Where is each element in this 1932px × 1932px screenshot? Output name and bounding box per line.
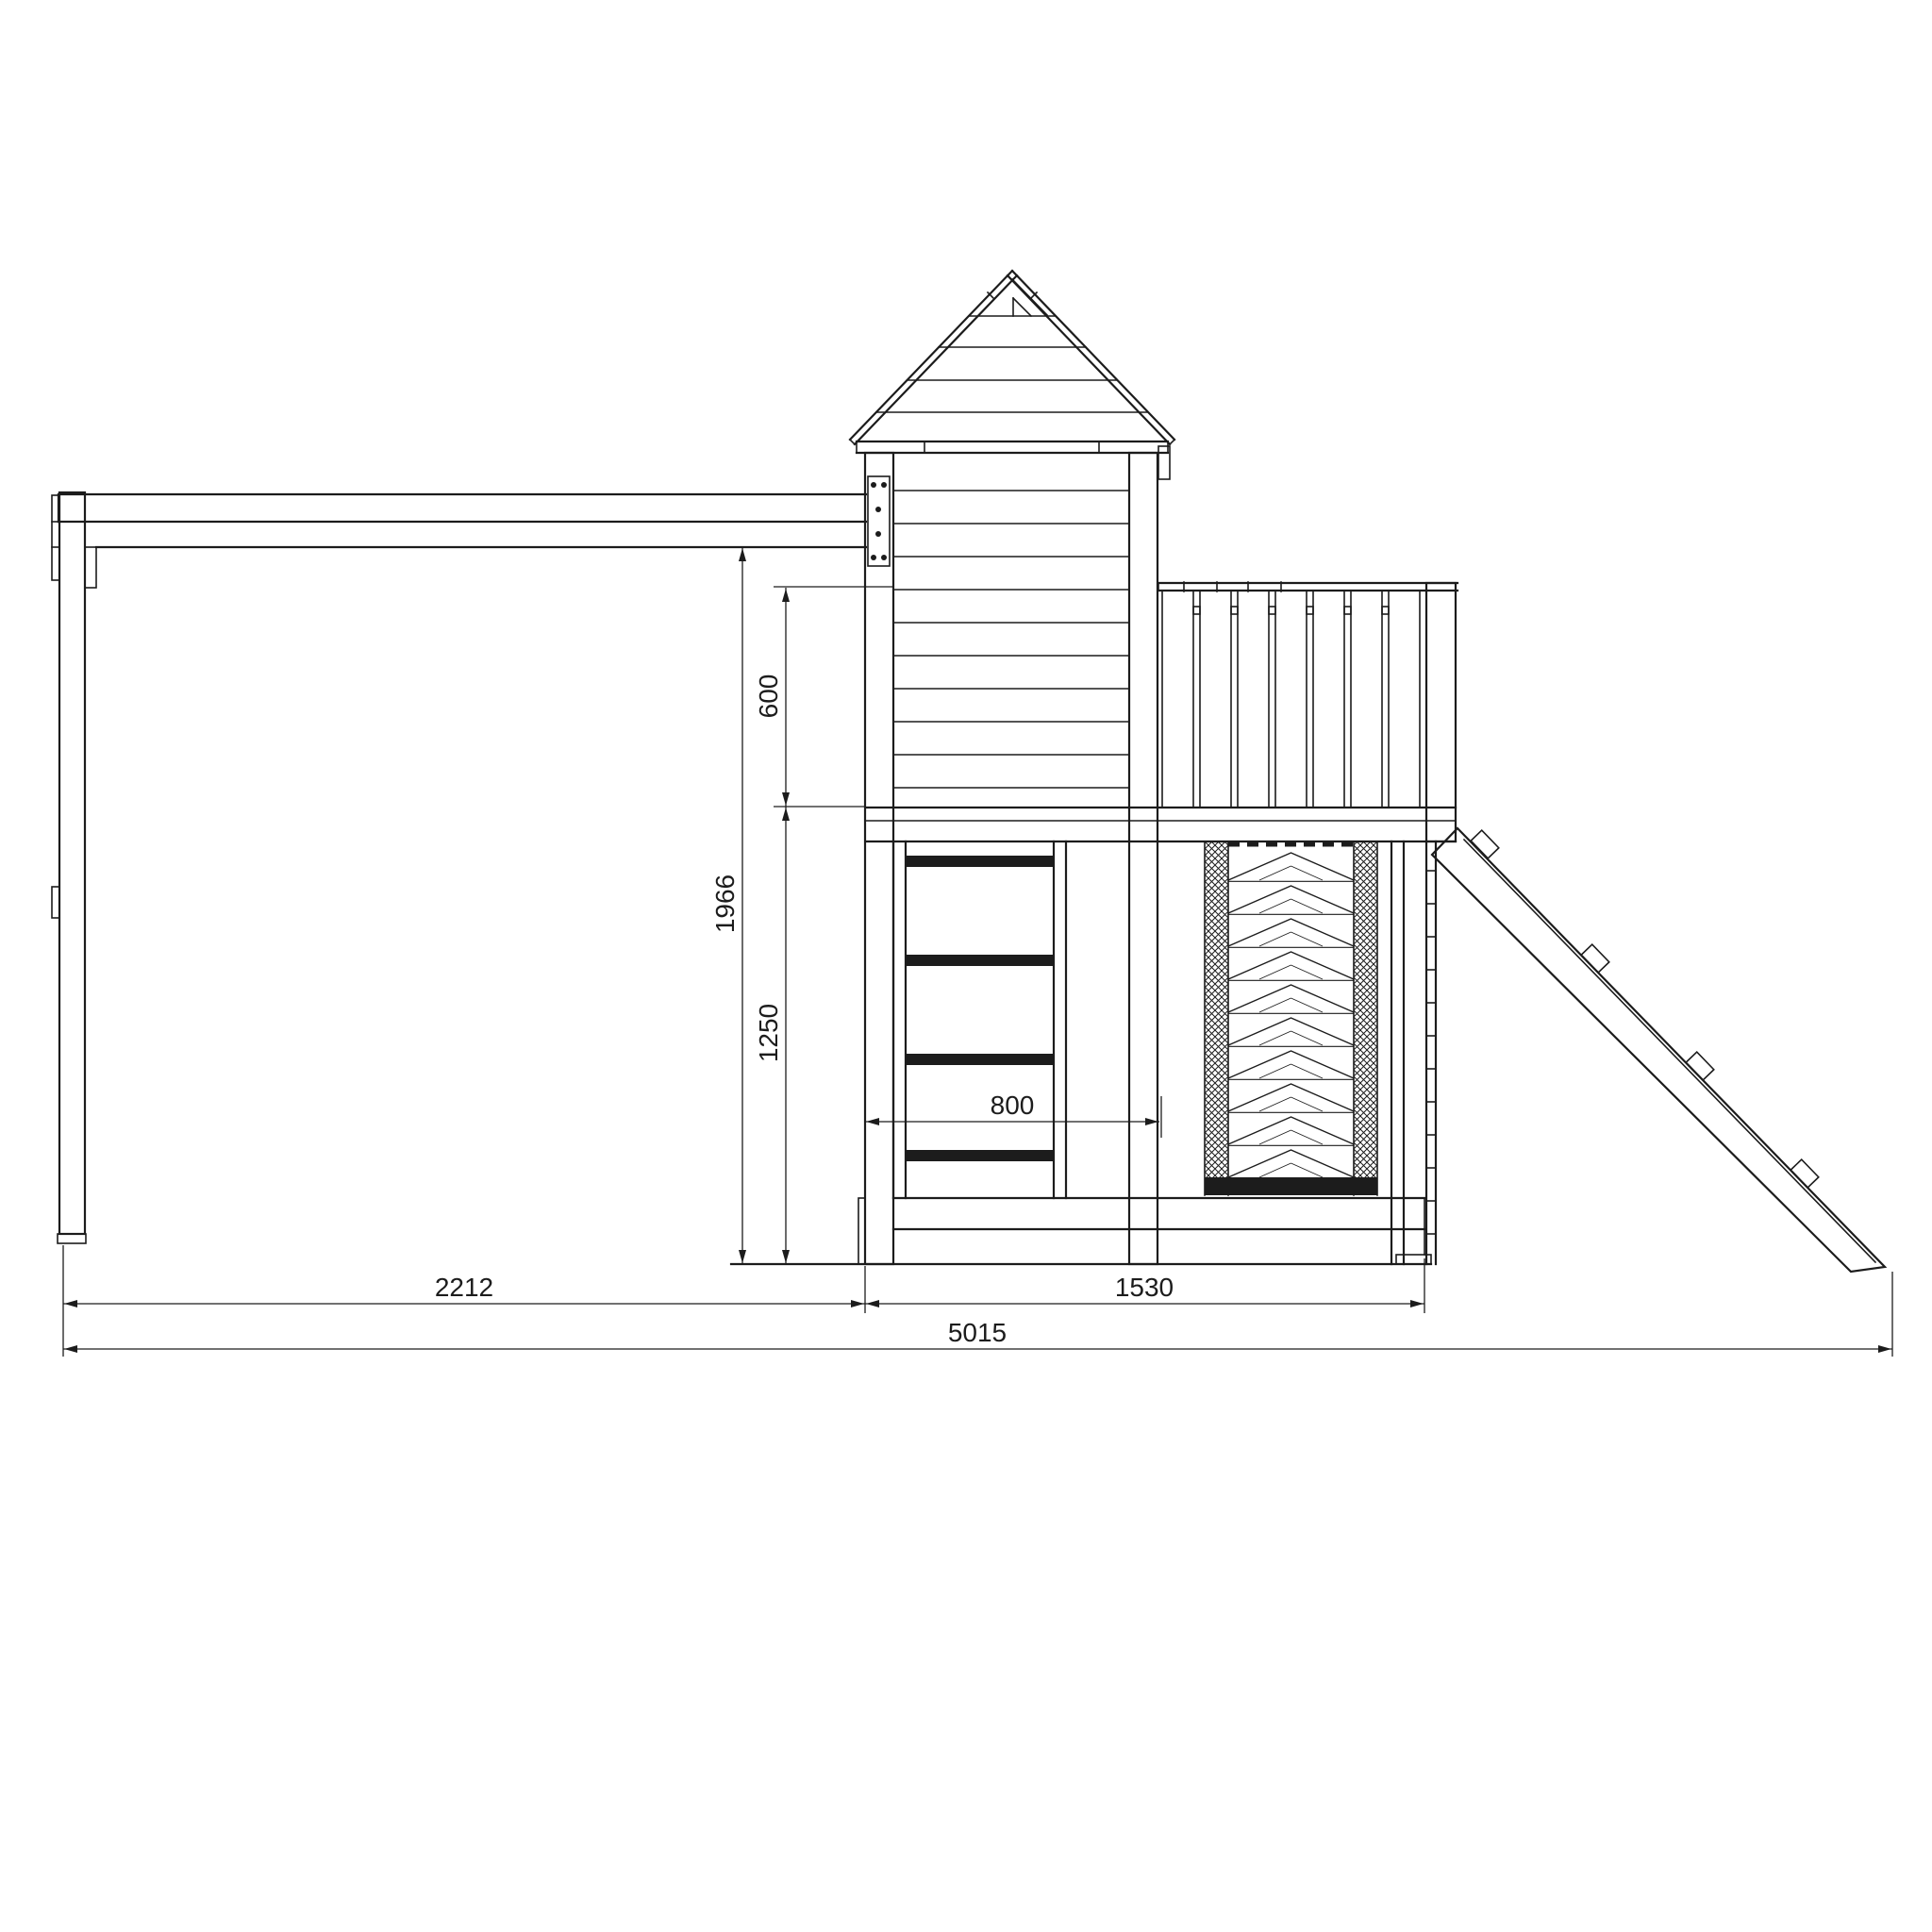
playset-elevation-drawing: 1966 600 1250 800 2212 1530 5015	[0, 0, 1932, 1932]
ramp-climbing-blocks	[1471, 830, 1819, 1188]
gable-apex-detail	[1012, 279, 1047, 316]
swing-post-foot	[58, 1234, 86, 1243]
tower-wall-siding	[893, 491, 1129, 788]
platform-deck	[866, 808, 1456, 841]
dimension-label-1966: 1966	[710, 874, 740, 933]
roof-top-plate	[857, 441, 1168, 453]
dimension-label-600: 600	[754, 675, 783, 719]
climbing-net	[1205, 841, 1377, 1195]
beam-to-post-bracket	[868, 476, 890, 566]
dimension-label-5015: 5015	[948, 1318, 1007, 1347]
dimension-label-2212: 2212	[435, 1273, 493, 1302]
ladder-rung	[906, 955, 1054, 966]
railing-end-post	[1426, 583, 1456, 841]
dimensions: 1966 600 1250 800 2212 1530 5015	[63, 547, 1892, 1357]
base-frame	[731, 1198, 1431, 1264]
tower-post-right	[1129, 453, 1158, 1264]
tower-roof	[850, 271, 1174, 453]
ramp-rail	[1464, 840, 1875, 1262]
roof-siding	[876, 316, 1148, 412]
post-mid-bracket	[52, 887, 59, 918]
dimension-label-1530: 1530	[1115, 1273, 1174, 1302]
net-edge-right	[1354, 841, 1377, 1195]
ramp-board	[1432, 828, 1885, 1272]
net-bottom-roll	[1205, 1177, 1377, 1195]
dimension-label-1250: 1250	[754, 1004, 783, 1062]
access-ladder	[893, 841, 1066, 1198]
net-edge-left	[1205, 841, 1228, 1195]
climbing-ramp	[1391, 828, 1885, 1272]
swing-beam	[58, 494, 866, 547]
beam-side-bracket	[85, 547, 96, 588]
swing-post	[52, 492, 96, 1243]
ladder-rung	[906, 1150, 1054, 1161]
dimension-label-800: 800	[991, 1091, 1035, 1120]
ladder-rung	[906, 856, 1054, 867]
platform-railing	[1158, 582, 1457, 841]
net-mesh	[1228, 849, 1354, 1177]
railing-balusters	[1162, 591, 1420, 808]
drawing-canvas: 1966 600 1250 800 2212 1530 5015	[0, 0, 1932, 1932]
ladder-rung	[906, 1054, 1054, 1065]
tower-body	[865, 446, 1170, 1264]
tower-post-left	[865, 453, 893, 1264]
rear-post-ticks	[1426, 870, 1436, 1266]
